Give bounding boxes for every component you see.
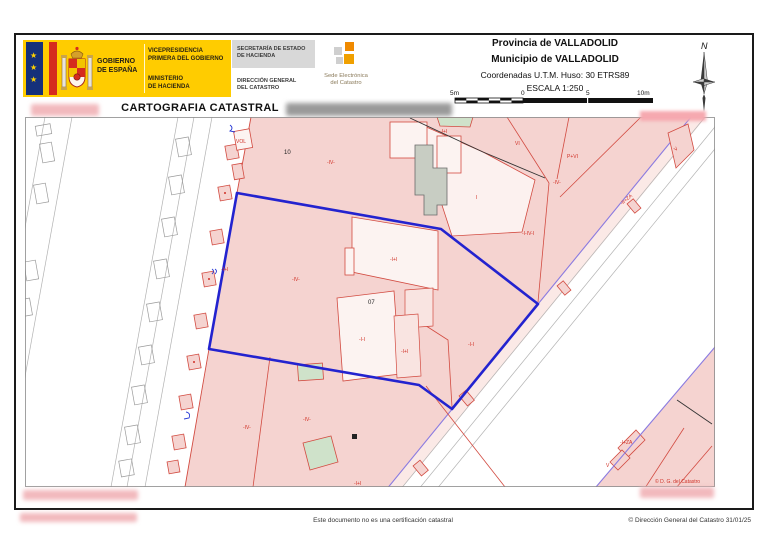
- svg-text:10m: 10m: [637, 90, 650, 97]
- parcel-number: 10: [284, 150, 291, 156]
- floors-label: VI: [515, 141, 520, 147]
- floors-label: -IV-: [553, 180, 561, 186]
- sede-electronica-label: Sede Electrónicadel Catastro: [318, 73, 374, 87]
- redacted-reference: [286, 103, 452, 116]
- floors-label: -I-I: [468, 342, 474, 348]
- floors-label: VOL: [236, 139, 246, 145]
- redacted-label: [23, 490, 138, 500]
- flag-star-icon: ★: [30, 52, 37, 60]
- gobierno-espana-label: GOBIERNODE ESPAÑA: [97, 58, 145, 75]
- flag-blue-panel: ★ ★ ★: [26, 42, 43, 95]
- municipio-label: Municipio de VALLADOLID: [440, 54, 670, 65]
- scale-bar: 5m 0 5 10m: [445, 88, 665, 108]
- vicepresidencia-label: VICEPRESIDENCIAPRIMERA DEL GOBIERNO: [148, 48, 228, 63]
- coordinates-label: Coordenadas U.T.M. Huso: 30 ETRS89: [430, 70, 680, 80]
- flag-star-icon: ★: [30, 64, 37, 72]
- floors-label: -I+I: [401, 349, 408, 355]
- floors-label: -I+I: [440, 129, 447, 135]
- redacted-label: [640, 487, 714, 498]
- page-title: CARTOGRAFIA CATASTRAL: [110, 102, 290, 114]
- map-copyright: © D. G. del Catastro: [655, 478, 700, 485]
- cadastral-map-page: ★ ★ ★ GOBIERNODE ESPAÑA VICEPRESIDENCIAP…: [0, 0, 766, 556]
- floors-label: -IV-: [327, 160, 335, 166]
- header-divider: [144, 44, 145, 93]
- floors-label: -I+I: [390, 257, 397, 263]
- map-symbol-black: [352, 434, 357, 439]
- svg-text:5m: 5m: [450, 90, 459, 97]
- floors-label: -IV-: [303, 417, 311, 423]
- building-annex: [345, 248, 354, 275]
- flag-red-stripe: [49, 42, 57, 95]
- svg-text:5: 5: [586, 90, 590, 97]
- north-compass-icon: N: [682, 38, 726, 116]
- floors-label: -I-IV-I: [522, 231, 534, 237]
- scale-bar-graphic: [455, 98, 653, 103]
- flag-star-icon: ★: [30, 76, 37, 84]
- ministerio-label: MINISTERIODE HACIENDA: [148, 76, 228, 91]
- secretaria-label: SECRETARÍA DE ESTADODE HACIENDA: [237, 46, 313, 60]
- direccion-general-label: DIRECCIÓN GENERALDEL CATASTRO: [237, 78, 313, 92]
- cadastral-map: 10 07 -IV- -I+I VI P+VI -I-IV-I I -I+I -…: [25, 117, 715, 487]
- floors-label: P+VI: [567, 154, 578, 160]
- floors-label: -IV-: [292, 277, 300, 283]
- redacted-label: [20, 513, 137, 522]
- svg-text:0: 0: [521, 90, 525, 97]
- footer-copyright: © Dirección General del Catastro 31/01/2…: [500, 517, 751, 524]
- floors-label: -I+ZA: [620, 440, 633, 446]
- small-parcel: [232, 163, 244, 180]
- building: [437, 136, 461, 173]
- redacted-label: [640, 111, 706, 121]
- footer-disclaimer: Este documento no es una certificación c…: [233, 517, 533, 524]
- provincia-label: Provincia de VALLADOLID: [440, 38, 670, 49]
- building-annex: [394, 314, 421, 378]
- floors-label: I: [476, 195, 477, 201]
- spain-coat-of-arms-icon: [60, 45, 94, 93]
- parcel-number: 07: [368, 300, 375, 306]
- sede-electronica-logo-icon: [333, 42, 357, 70]
- floors-label: -I+I: [221, 267, 228, 273]
- floors-label: -IV-: [243, 425, 251, 431]
- redacted-reference: [31, 104, 99, 116]
- svg-text:N: N: [701, 41, 708, 51]
- floors-label: -I-I: [359, 337, 365, 343]
